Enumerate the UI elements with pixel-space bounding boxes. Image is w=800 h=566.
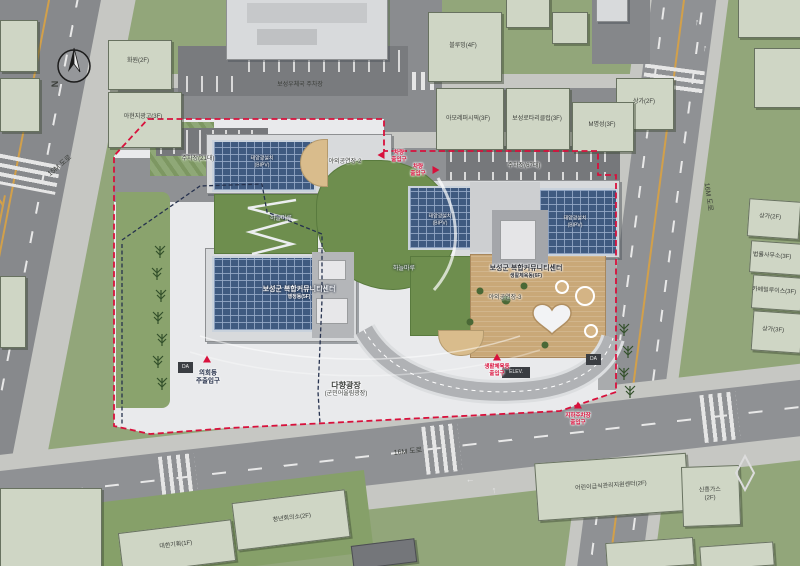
label-line: 주출입구 [196, 378, 220, 386]
stage2-label: 야외공연장-2 [329, 159, 362, 167]
bld-label-m-myeongseong: M명성(3F) [588, 122, 615, 130]
building-post-office [226, 0, 388, 60]
solar-roof-label: 태양광설치 (BIPV) [250, 156, 273, 169]
site-parking67-label: 주차장(67대) [508, 163, 541, 171]
bld-label-hwawon: 화원(2F) [127, 58, 149, 66]
admin-rooftop-box [318, 260, 346, 280]
building [506, 0, 550, 28]
stage3-label: 야외공연장-3 [489, 295, 522, 303]
compass-north-label: N [50, 81, 62, 88]
roof-detail [247, 3, 367, 23]
sky-garden-label: 하늘마루 [393, 266, 415, 274]
label-line: 생활체육동(6F) [490, 273, 563, 280]
sky-garden-label: 하늘마루 [270, 216, 292, 224]
label-line: (군민어울림광장) [325, 391, 368, 399]
building [0, 276, 26, 348]
entrance-arrow-icon [493, 354, 501, 361]
label-line: 행정동(5F) [263, 294, 336, 301]
label-line: 출입구 [565, 420, 590, 427]
bld-label-rotary: 보성로타리클럽(3F) [512, 116, 562, 124]
da-label: DA [590, 356, 597, 362]
building [754, 48, 800, 108]
label-line: (2F) [699, 495, 721, 504]
sports-entrance-label: 생활체육동 출입구 [484, 364, 509, 378]
label-line: 출입구 [391, 157, 406, 164]
basement-parking-entrance-label: 지하주차장 출입구 [565, 413, 590, 427]
label-line: (BIPV) [250, 162, 273, 169]
vehicle-entrance-label: 차량 출입구 [410, 164, 425, 178]
building [699, 541, 774, 566]
building [605, 537, 695, 566]
label-line: (BIPV) [428, 220, 451, 227]
entrance-arrow-icon [378, 151, 385, 159]
lane-arrow-icon: ← [465, 474, 475, 485]
vehicle-entrance-label: 차량 출입구 [391, 150, 406, 164]
plaza-label: 다향광장 (군민어울림광장) [325, 381, 368, 399]
sports-lawn [410, 256, 472, 336]
bld-label-amore: 아모레퍼시픽(3F) [446, 116, 490, 124]
bld-label-ad-agency: 아현지광고(3F) [124, 114, 163, 122]
label-line: 출입구 [410, 171, 425, 178]
parking-stripes [186, 76, 246, 92]
admin-building-label: 보성군 복합커뮤니티센터 행정동(5F) [263, 285, 336, 301]
bld-label-sangga-east: 상가(2F) [759, 213, 782, 222]
sports-building-label: 보성군 복합커뮤니티센터 생활체육동(6F) [490, 264, 563, 280]
crosswalk [421, 423, 462, 475]
label-line: 신흥가스 [699, 487, 721, 496]
road-label-right: 16M 도로 [702, 182, 715, 211]
roof-garden-courtyard [214, 194, 318, 254]
roof-detail [257, 29, 317, 45]
da-ramp-box: DA [586, 354, 601, 365]
label-line: 보성군 복합커뮤니티센터 [490, 264, 563, 273]
post-office-parking-label: 보성우체국 주차장 [277, 82, 323, 90]
crosswalk [699, 391, 740, 443]
label-line: 보성군 복합커뮤니티센터 [263, 285, 336, 294]
bld-label-sangga-north: 상가(2F) [633, 99, 655, 107]
building [552, 12, 588, 44]
label-line: 태양광설치 [563, 216, 586, 223]
left-grass-strip [116, 192, 170, 408]
sports-core-top [500, 220, 536, 260]
bld-label-sangga3f-east: 상가(3F) [762, 326, 785, 335]
bld-label-blooming: 블루밍(4F) [449, 43, 477, 51]
solar-roof-label: 태양광설치 (BIPV) [563, 216, 586, 229]
building [596, 0, 628, 22]
bld-label-shinheung: 신흥가스 (2F) [699, 487, 722, 503]
label-line: 태양광설치 [428, 214, 451, 221]
label-line: 출입구 [484, 371, 509, 378]
da-label: DA [182, 364, 189, 370]
solar-roof-label: 태양광설치 (BIPV) [428, 214, 451, 227]
site-parking21-label: 주차장(21대) [182, 156, 215, 164]
site-plan-canvas: ELEV. DA DA [0, 0, 800, 566]
label-line: 다향광장 [325, 381, 368, 391]
building [0, 78, 40, 132]
building [0, 20, 38, 72]
label-line: (BIPV) [563, 222, 586, 229]
label-line: 태양광설치 [250, 156, 273, 163]
entrance-arrow-icon [574, 402, 582, 409]
admin-rooftop-box [316, 298, 348, 324]
building [0, 488, 102, 566]
council-entrance-label: 의회동 주출입구 [196, 370, 220, 387]
entrance-arrow-icon [433, 166, 440, 174]
da-ramp-box: DA [178, 362, 193, 373]
elevator-label: ELEV. [509, 369, 523, 375]
building [738, 0, 800, 38]
entrance-arrow-icon [203, 356, 211, 363]
lane-arrow-icon: ↑ [491, 485, 497, 495]
